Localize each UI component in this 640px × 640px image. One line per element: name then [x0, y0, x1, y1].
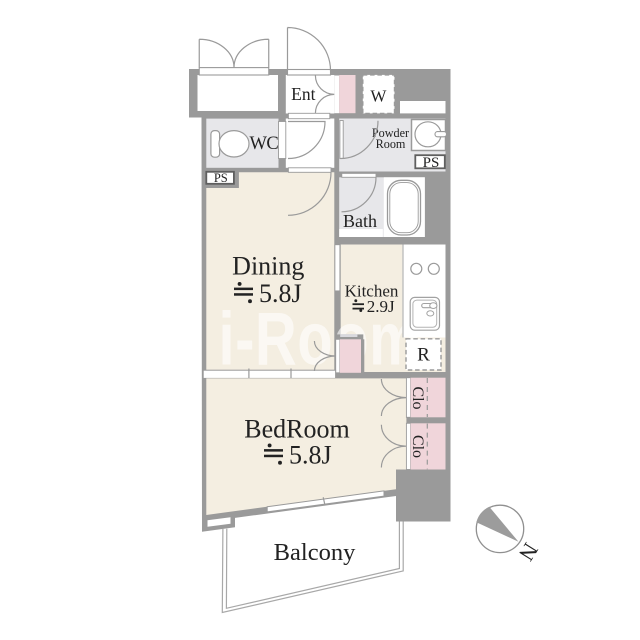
svg-text:Dining: Dining [232, 252, 304, 281]
svg-text:Room: Room [376, 137, 406, 151]
svg-text:2.9J: 2.9J [367, 297, 395, 316]
svg-text:WC: WC [250, 134, 279, 154]
svg-text:Bath: Bath [343, 211, 377, 231]
svg-text:BedRoom: BedRoom [244, 414, 349, 443]
svg-text:5.8J: 5.8J [289, 441, 332, 470]
svg-text:W: W [370, 86, 387, 105]
svg-text:Balcony: Balcony [274, 539, 356, 566]
svg-text:Ent: Ent [291, 84, 315, 104]
svg-text:PS: PS [423, 155, 440, 171]
svg-text:Clo: Clo [409, 435, 426, 458]
svg-text:PS: PS [214, 171, 228, 185]
svg-text:Clo: Clo [409, 386, 426, 409]
svg-text:R: R [417, 345, 430, 366]
svg-text:5.8J: 5.8J [259, 279, 302, 308]
